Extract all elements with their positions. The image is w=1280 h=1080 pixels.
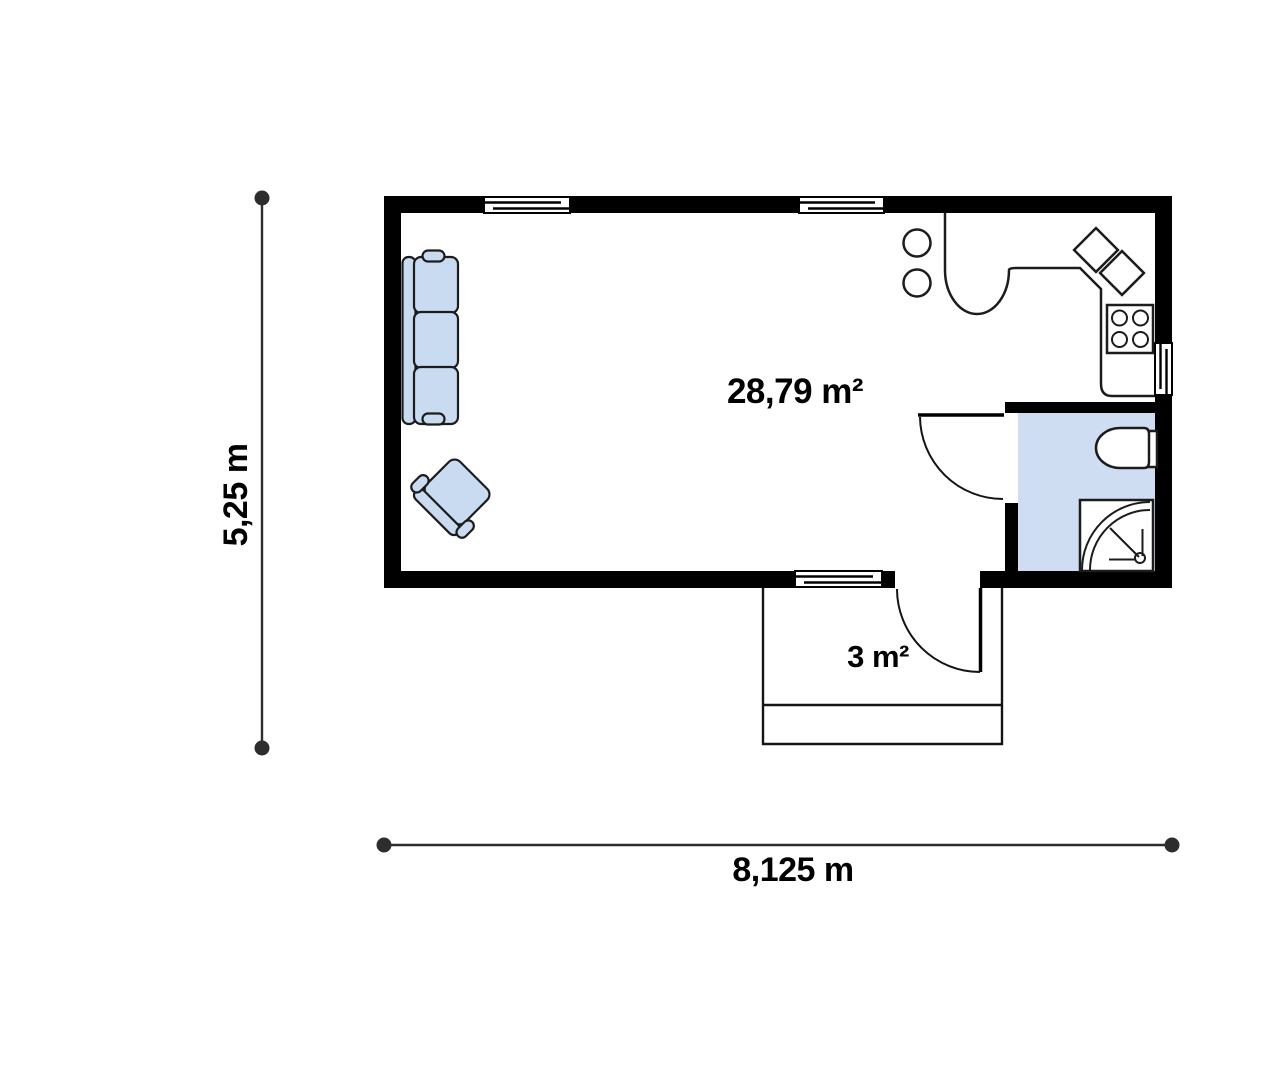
- dimension-endpoint-dot: [1165, 838, 1180, 853]
- bar-stool-icon: [904, 270, 931, 297]
- sofa-cushion: [414, 312, 458, 368]
- sofa-cushion: [414, 257, 458, 313]
- shower-icon: [1080, 500, 1153, 571]
- floor-plan: 28,79 m² 3 m² 5,25 m 8,125 m: [0, 0, 1280, 1080]
- width-dimension-label: 8,125 m: [732, 851, 853, 889]
- bathroom-top-wall: [1005, 402, 1155, 413]
- sofa-armrest: [423, 251, 445, 262]
- top-window-right: [799, 197, 884, 213]
- bottom-window: [795, 571, 882, 587]
- top-window-left: [484, 197, 570, 213]
- bathroom-left-wall: [1005, 503, 1018, 588]
- bar-stool-icon: [904, 230, 931, 257]
- main-room-area-label: 28,79 m²: [727, 372, 863, 411]
- sofa-armrest: [423, 414, 445, 425]
- entry-door: [897, 588, 981, 672]
- height-dimension-label: 5,25 m: [217, 444, 255, 547]
- sofa: [403, 251, 459, 425]
- dimension-endpoint-dot: [255, 191, 270, 206]
- dimension-endpoint-dot: [377, 838, 392, 853]
- right-wall-window: [1155, 343, 1172, 395]
- toilet-icon: [1096, 428, 1157, 468]
- entrance-area-label: 3 m²: [847, 639, 909, 674]
- horizontal-dimension: 8,125 m: [377, 838, 1180, 890]
- entry-doorway-opening: [895, 570, 980, 589]
- dimension-endpoint-dot: [255, 741, 270, 756]
- stove-icon: [1107, 305, 1153, 353]
- vertical-dimension: 5,25 m: [217, 191, 270, 756]
